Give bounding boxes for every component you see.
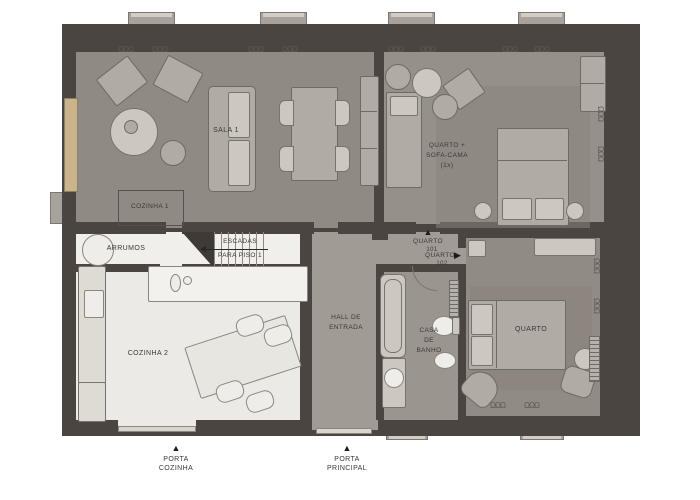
radiator-symbol	[596, 146, 604, 161]
floor-lamp	[474, 202, 492, 220]
pouf	[160, 140, 186, 166]
kitchen-sink-left	[84, 290, 104, 318]
pillow	[502, 198, 532, 220]
label-banho-line2: DE	[424, 337, 434, 345]
cabinet-divider	[360, 111, 377, 112]
label-banho-line3: BANHO	[416, 347, 441, 355]
radiator-symbol	[502, 46, 517, 54]
pillow	[471, 336, 493, 366]
porch-step	[263, 13, 304, 17]
island-faucet	[183, 276, 192, 285]
floor-lamp	[566, 202, 584, 220]
sofa-cushion	[228, 140, 250, 186]
cabinet-sala	[360, 76, 379, 186]
porch-step	[131, 13, 172, 17]
pillow	[471, 304, 493, 335]
label-cozinha1: COZINHA 1	[131, 203, 169, 211]
label-quarto-sofa-line1: QUARTO +	[429, 142, 465, 150]
round-table-bedroom1	[412, 68, 442, 98]
pillow	[535, 198, 564, 220]
ceiling-fan-symbol	[385, 64, 411, 90]
label-porta-principal-line1: PORTA	[334, 456, 359, 464]
label-hall-line2: ENTRADA	[329, 324, 363, 332]
label-banho-line1: CASA	[419, 327, 438, 335]
dining-chair	[335, 146, 350, 172]
label-arrumos: ARRUMOS	[107, 245, 146, 253]
up-arrow-icon: ▲	[343, 444, 352, 453]
cabinet-divider	[360, 148, 377, 149]
toilet-tank	[452, 317, 460, 335]
radiator-symbol	[592, 298, 600, 313]
bathtub-inner	[384, 279, 402, 353]
wall-quarto-left-1	[458, 232, 466, 248]
radiator-symbol	[524, 402, 539, 410]
blanket-line	[497, 160, 567, 161]
label-quarto102-line1: QUARTO	[425, 252, 455, 260]
sofa-bed-pillow	[390, 96, 418, 116]
wall-lamp	[468, 240, 486, 257]
radiator-symbol	[282, 46, 297, 54]
label-cozinha2: COZINHA 2	[128, 350, 169, 358]
label-sala1: SALA 1	[213, 127, 239, 135]
radiator-symbol	[152, 46, 167, 54]
radiator-symbol	[534, 46, 549, 54]
label-escadas-line1: ESCADAS	[223, 238, 257, 246]
label-escadas-line2: PARA PISO 1	[218, 252, 262, 260]
dining-table	[291, 87, 338, 181]
label-hall-line1: HALL DE	[331, 314, 361, 322]
wall-bathroom-top-1	[384, 264, 412, 272]
label-quarto: QUARTO	[515, 326, 547, 334]
kitchen-cabinet-lower	[78, 382, 106, 422]
kitchen-glass-door	[118, 426, 196, 432]
dining-chair	[335, 100, 350, 126]
stool-bedroom1	[432, 94, 458, 120]
floor-plan: SALA 1 COZINHA 1 ARRUMOS ESCADAS PARA PI…	[0, 0, 700, 500]
kitchen-counter-left	[78, 266, 106, 384]
stairs-direction-line	[206, 249, 268, 250]
radiator-symbol	[248, 46, 263, 54]
wall-corner-hall	[372, 222, 388, 240]
washbasin	[384, 368, 404, 388]
wardrobe-divider	[580, 83, 604, 84]
radiator-symbol	[118, 46, 133, 54]
window-sala-left	[64, 98, 78, 192]
clothes-rack	[589, 336, 600, 382]
wall-stairs-hall	[300, 232, 312, 268]
up-arrow-icon: ▲	[172, 444, 181, 453]
dining-chair	[279, 146, 294, 172]
wall-storage-bottom-1	[62, 264, 160, 272]
up-arrow-icon: ▲	[424, 228, 433, 237]
bathroom-radiator	[449, 280, 459, 318]
radiator-symbol	[596, 106, 604, 121]
blanket-line	[496, 300, 497, 368]
label-quarto-sofa-line3: (1x)	[441, 162, 454, 170]
right-arrow-icon: ▶	[454, 251, 461, 260]
radiator-symbol	[490, 402, 505, 410]
radiator-symbol	[420, 46, 435, 54]
wardrobe	[580, 56, 606, 112]
label-porta-cozinha-line1: PORTA	[163, 456, 188, 464]
radiator-symbol	[592, 258, 600, 273]
stairs-direction-arrow	[200, 246, 206, 252]
porch-step	[391, 13, 432, 17]
main-entrance-door	[316, 428, 372, 434]
label-quarto102-line2: 102	[436, 260, 447, 268]
radiator-symbol	[388, 46, 403, 54]
porch-step	[521, 13, 562, 17]
table-decor	[124, 120, 138, 134]
label-quarto101-line1: QUARTO	[413, 238, 443, 246]
label-porta-cozinha-line2: COZINHA	[159, 465, 193, 473]
dresser	[534, 238, 596, 256]
label-porta-principal-line2: PRINCIPAL	[327, 465, 367, 473]
label-quarto-sofa-line2: SOFA-CAMA	[426, 152, 468, 160]
island-sink	[170, 274, 181, 292]
dining-chair	[279, 100, 294, 126]
